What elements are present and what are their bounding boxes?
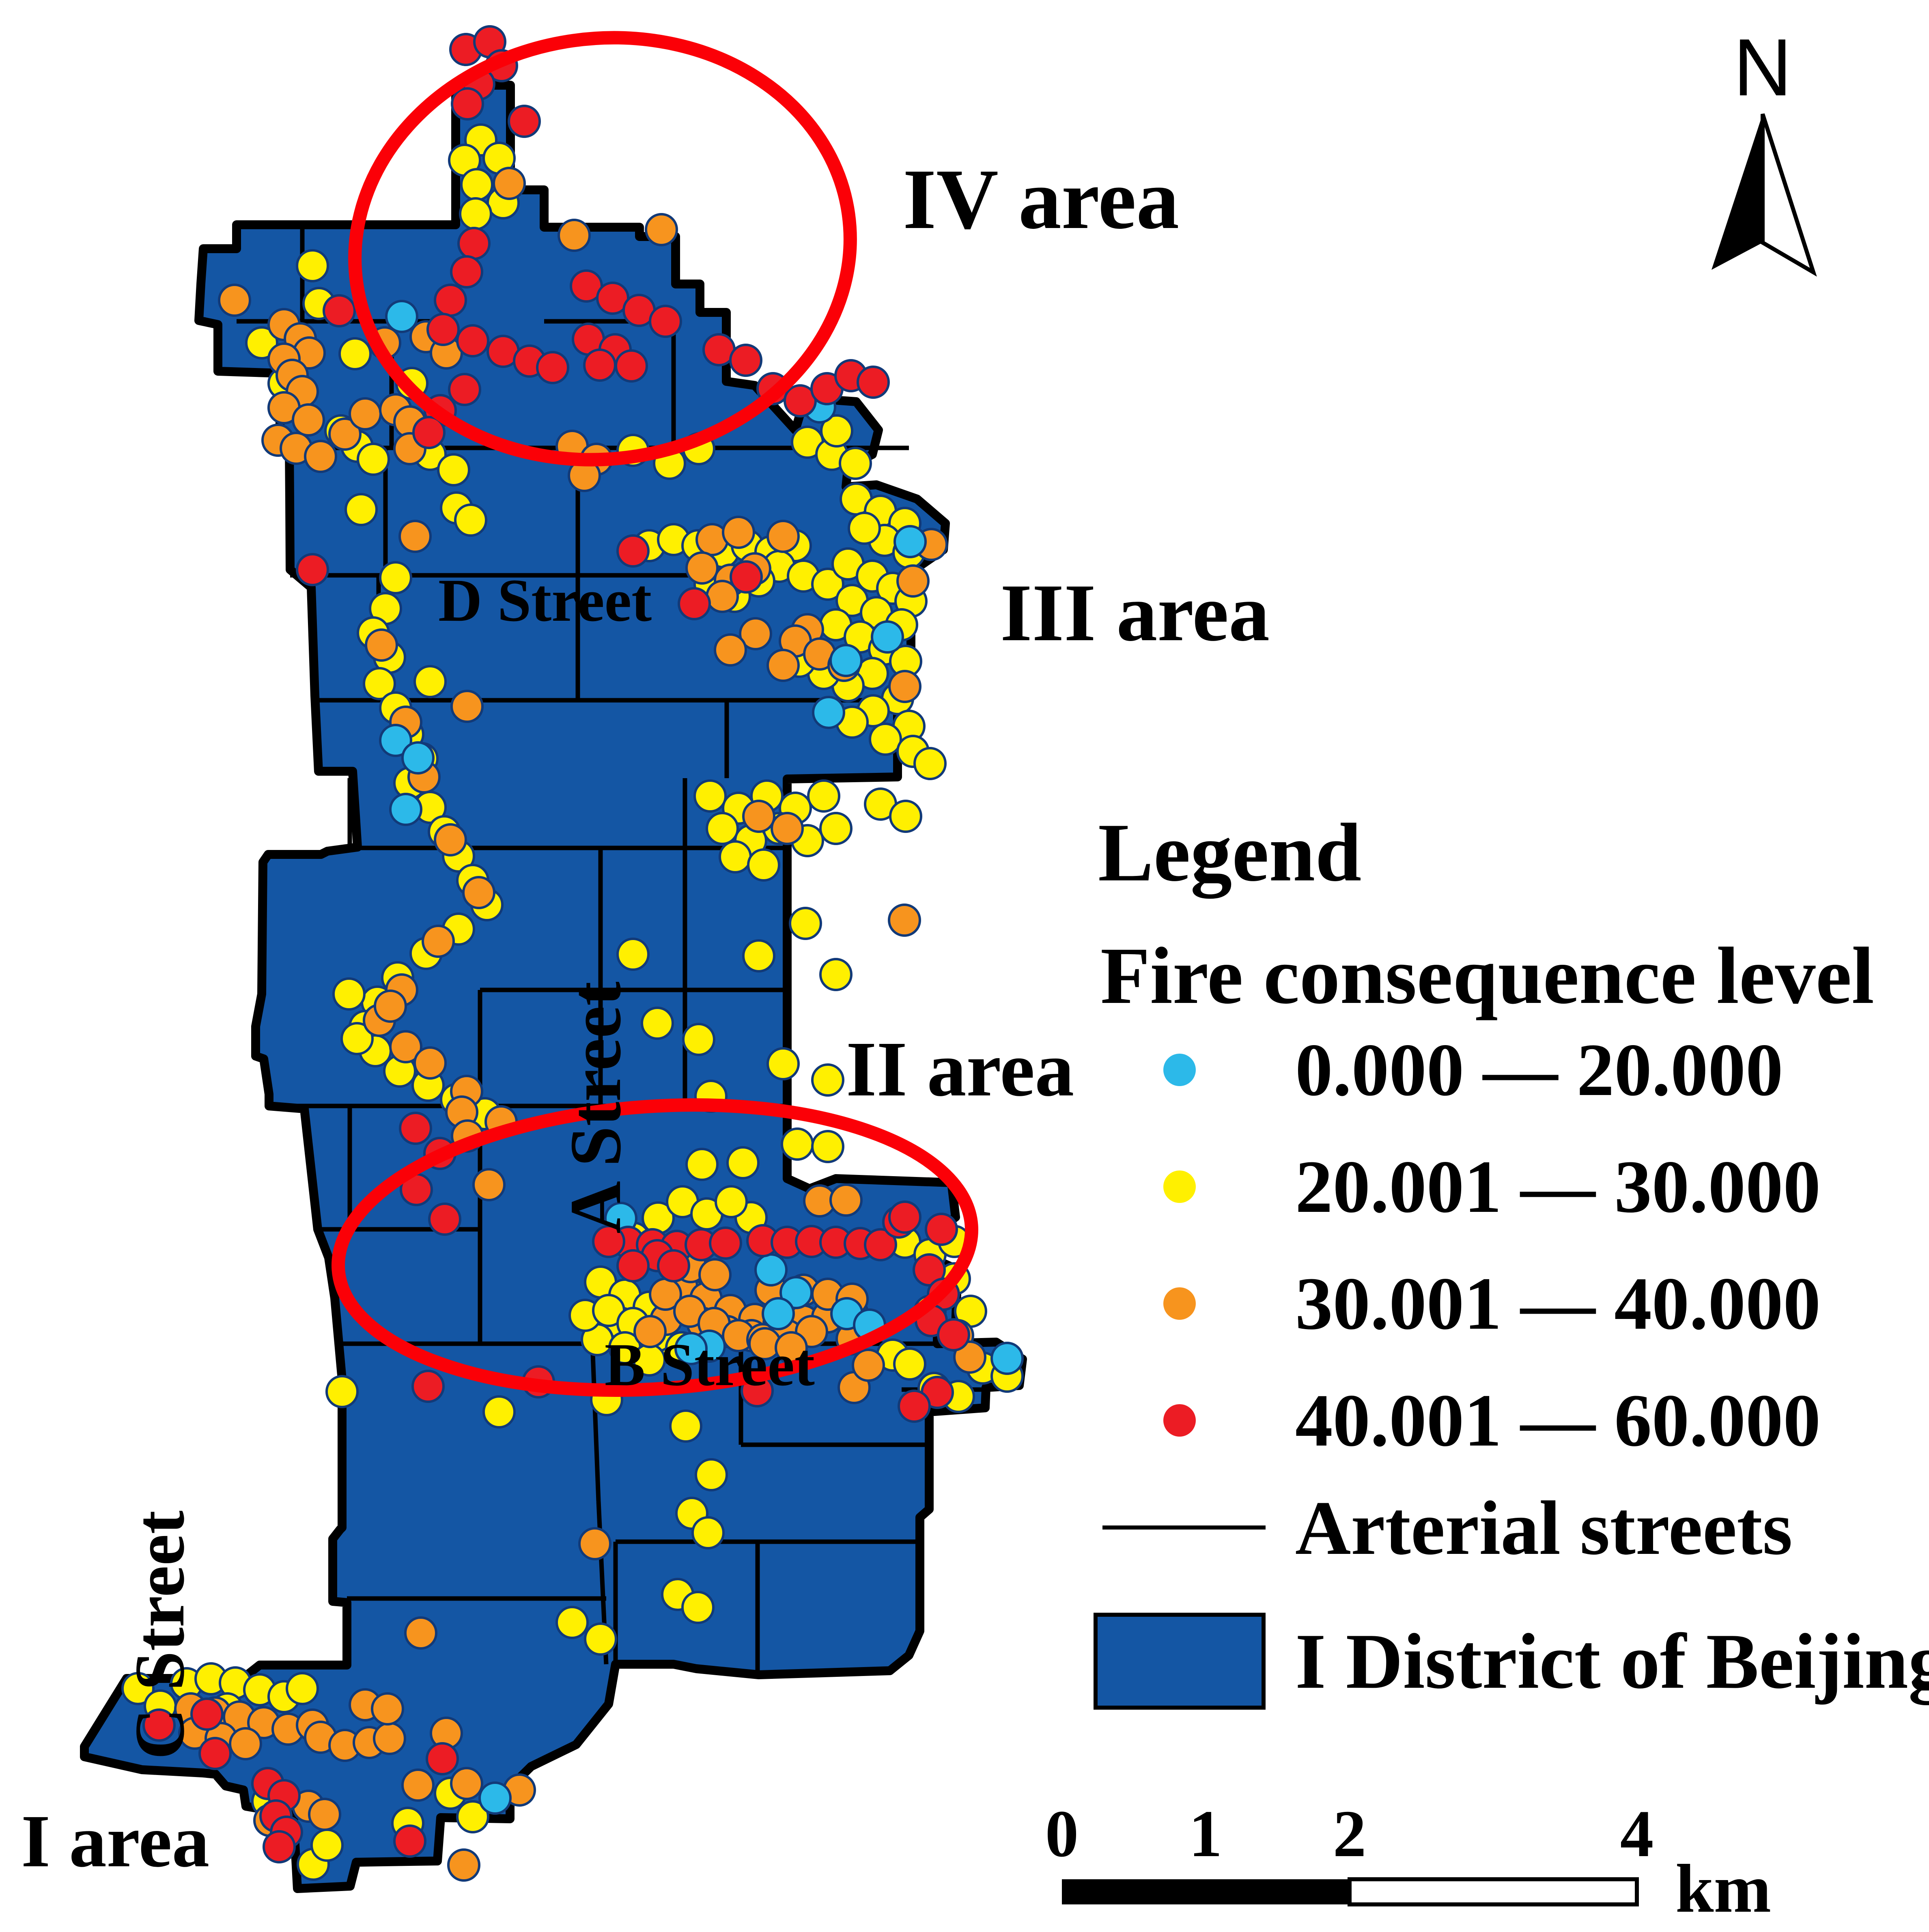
svg-text:IV area: IV area [903, 151, 1179, 247]
svg-text:1: 1 [1189, 1796, 1223, 1871]
svg-text:I area: I area [21, 1800, 209, 1883]
svg-text:Legend: Legend [1098, 807, 1361, 899]
svg-text:km: km [1675, 1850, 1771, 1927]
svg-text:C Street: C Street [120, 1510, 199, 1760]
svg-text:III area: III area [1000, 567, 1270, 658]
svg-text:D Street: D Street [438, 567, 652, 634]
svg-text:2: 2 [1333, 1796, 1367, 1871]
svg-text:0: 0 [1045, 1796, 1079, 1871]
svg-text:40.001 — 60.000: 40.001 — 60.000 [1295, 1379, 1821, 1462]
svg-text:B Street: B Street [605, 1331, 815, 1398]
svg-text:4: 4 [1620, 1796, 1654, 1871]
svg-text:0.000 — 20.000: 0.000 — 20.000 [1295, 1028, 1783, 1112]
svg-text:Arterial streets: Arterial streets [1295, 1486, 1793, 1571]
svg-text:N: N [1733, 22, 1792, 113]
svg-text:A Street: A Street [555, 981, 636, 1234]
svg-text:I District of Beijing: I District of Beijing [1295, 1618, 1929, 1705]
svg-text:Fire consequence level: Fire consequence level [1100, 931, 1874, 1021]
svg-text:II area: II area [846, 1025, 1074, 1112]
svg-text:30.001 — 40.000: 30.001 — 40.000 [1295, 1262, 1821, 1345]
svg-text:20.001 — 30.000: 20.001 — 30.000 [1295, 1145, 1821, 1228]
